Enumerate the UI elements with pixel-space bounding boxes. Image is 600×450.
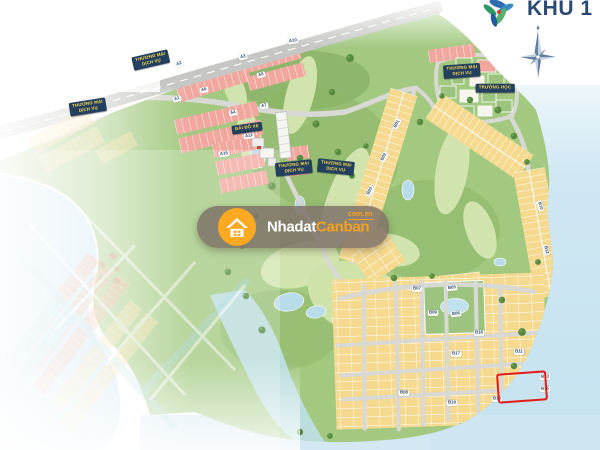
masterplan-map: THƯƠNG MẠIDỊCH VỤTHƯƠNG MẠIDỊCH VỤTHƯƠNG… bbox=[0, 0, 600, 450]
area-label: THƯƠNG MẠIDỊCH VỤ bbox=[443, 63, 481, 79]
road-badge: A4 bbox=[228, 109, 238, 117]
area-label: TRƯỜNG HỌC bbox=[476, 84, 515, 92]
road-badge: A1 bbox=[172, 95, 182, 103]
road-badge: B17 bbox=[451, 351, 462, 357]
road-badge: B06 bbox=[450, 311, 461, 318]
road-badge: B12 bbox=[542, 244, 550, 256]
area-label: THƯƠNG MẠIDỊCH VỤ bbox=[317, 158, 355, 176]
road-badge: B01 bbox=[392, 118, 402, 130]
road-badge: B10 bbox=[536, 200, 545, 212]
road-badge: B05 bbox=[446, 285, 457, 292]
road-badge: A12 bbox=[243, 132, 255, 140]
area-label: THƯƠNG MẠIDỊCH VỤ bbox=[275, 159, 313, 177]
road-badge: B02 bbox=[379, 151, 389, 163]
zone-title: KHU 1 bbox=[527, 0, 593, 21]
road-badge: B16 bbox=[474, 330, 485, 336]
road-badge: B19 bbox=[447, 400, 458, 406]
road-badge: A10 bbox=[287, 37, 299, 44]
road-badge: B08 bbox=[399, 390, 410, 396]
area-label: THƯƠNG MẠIDỊCH VỤ bbox=[131, 49, 170, 71]
area-label: THƯƠNG MẠIDỊCH VỤ bbox=[69, 97, 108, 116]
highlighted-lot-outline bbox=[496, 370, 548, 403]
road-badge: B07 bbox=[412, 286, 423, 292]
road-badge: B09 bbox=[428, 310, 439, 316]
watermark-domain: com.vn bbox=[348, 211, 373, 220]
road-badge: A6 bbox=[199, 86, 209, 94]
watermark: NhadatCanban com.vn bbox=[197, 206, 389, 248]
road-badge: A3 bbox=[238, 53, 248, 61]
road-badge: A7 bbox=[259, 102, 268, 109]
house-icon bbox=[218, 208, 256, 246]
watermark-brand: NhadatCanban bbox=[267, 219, 369, 236]
road-badge: A2 bbox=[174, 60, 184, 68]
road-badge: A15 bbox=[218, 150, 230, 157]
road-badge: A5 bbox=[256, 71, 266, 79]
road-badge: B11 bbox=[514, 349, 525, 355]
road-badge: B03 bbox=[365, 185, 375, 197]
